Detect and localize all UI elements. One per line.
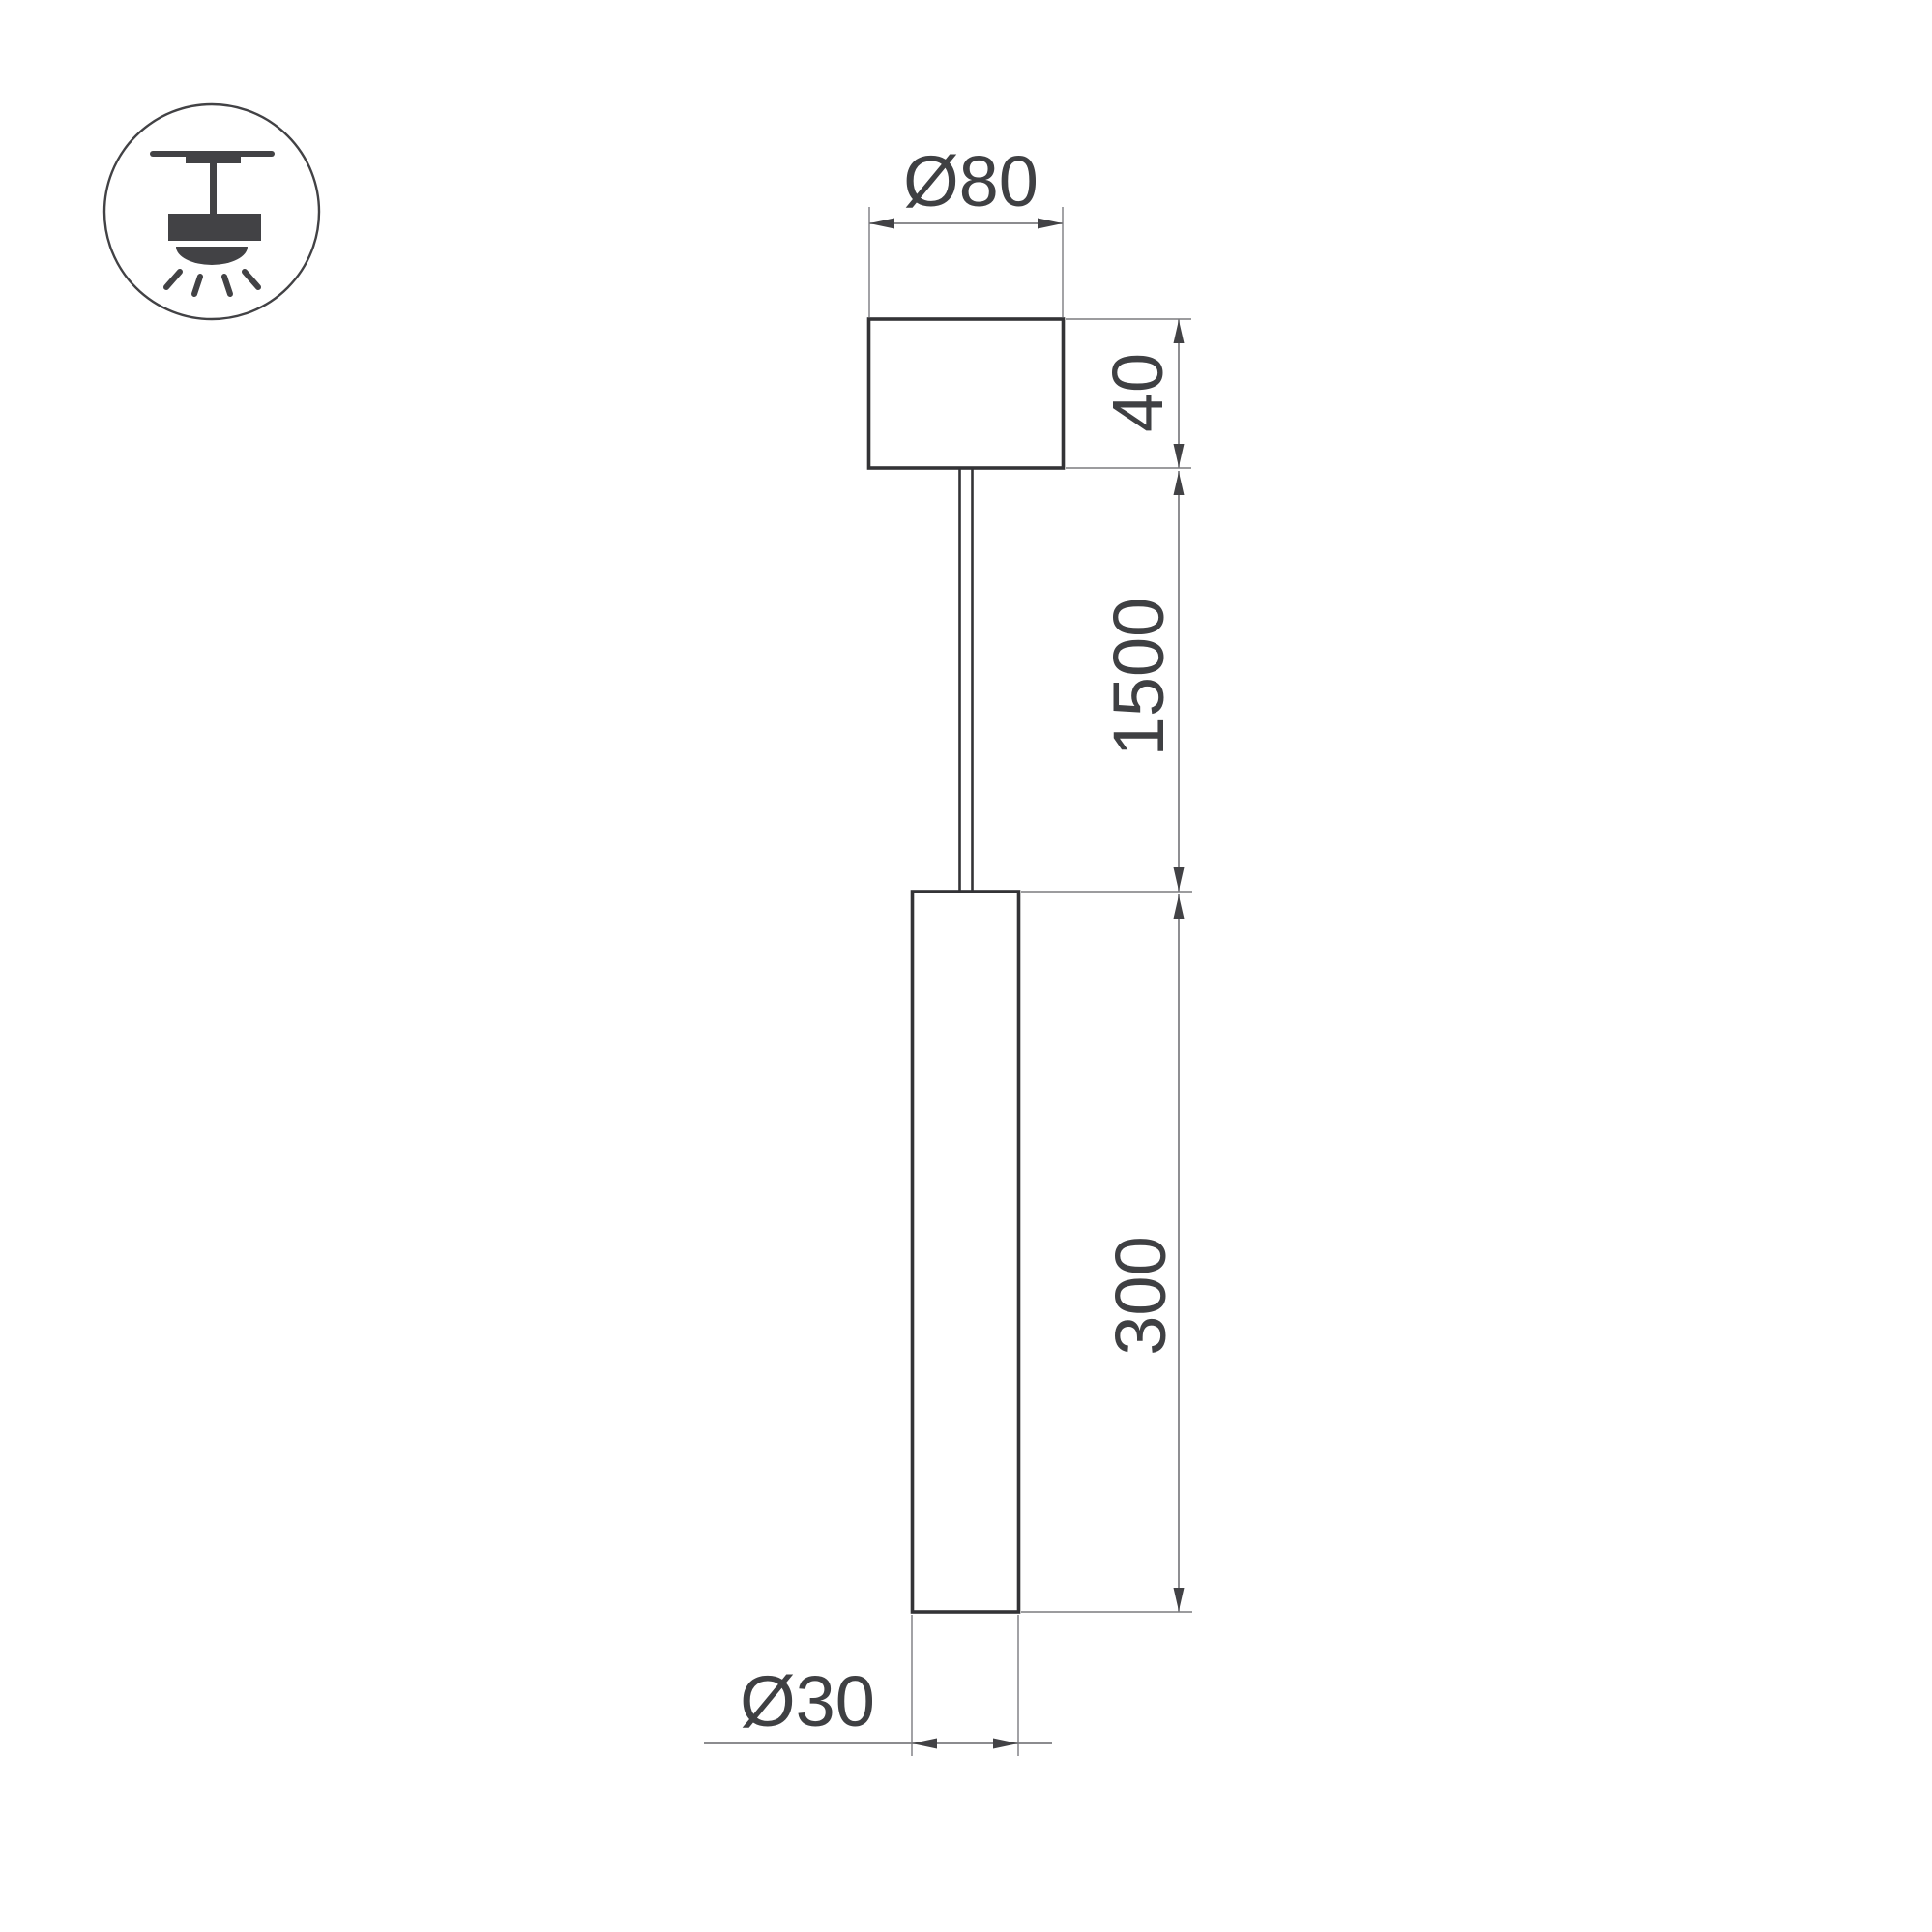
arrowhead-up	[1174, 472, 1185, 495]
suspension-wire	[960, 468, 973, 892]
luminaire-outline	[869, 319, 1064, 1612]
arrowhead-left	[912, 1739, 937, 1749]
icon-light-rays	[166, 272, 258, 294]
arrowhead-up	[1174, 320, 1185, 343]
arrowhead-down	[1174, 867, 1185, 891]
ceiling-pendant-mount-icon	[104, 104, 319, 319]
pendant-drawing-svg	[0, 0, 1932, 1932]
dim-label-canopy-diameter: Ø80	[903, 146, 1039, 218]
dim-label-suspension-length: 1500	[1103, 598, 1175, 757]
icon-lamp-body	[168, 214, 261, 241]
dim-label-body-diameter: Ø30	[740, 1666, 875, 1738]
canopy-outline	[869, 319, 1064, 468]
arrowhead-up	[1174, 895, 1185, 919]
arrowhead-right	[993, 1739, 1018, 1749]
dim-label-canopy-height: 40	[1102, 353, 1174, 432]
tube-body-outline	[913, 892, 1019, 1612]
icon-suspension-rod	[210, 161, 217, 216]
dim-label-body-length: 300	[1105, 1236, 1177, 1355]
technical-drawing-canvas: Ø80 40 1500 300 Ø30	[0, 0, 1932, 1932]
arrowhead-right	[1038, 219, 1063, 229]
arrowhead-left	[869, 219, 894, 229]
arrowhead-down	[1174, 1588, 1185, 1611]
arrowhead-down	[1174, 444, 1185, 467]
icon-lamp-dome	[176, 247, 248, 265]
